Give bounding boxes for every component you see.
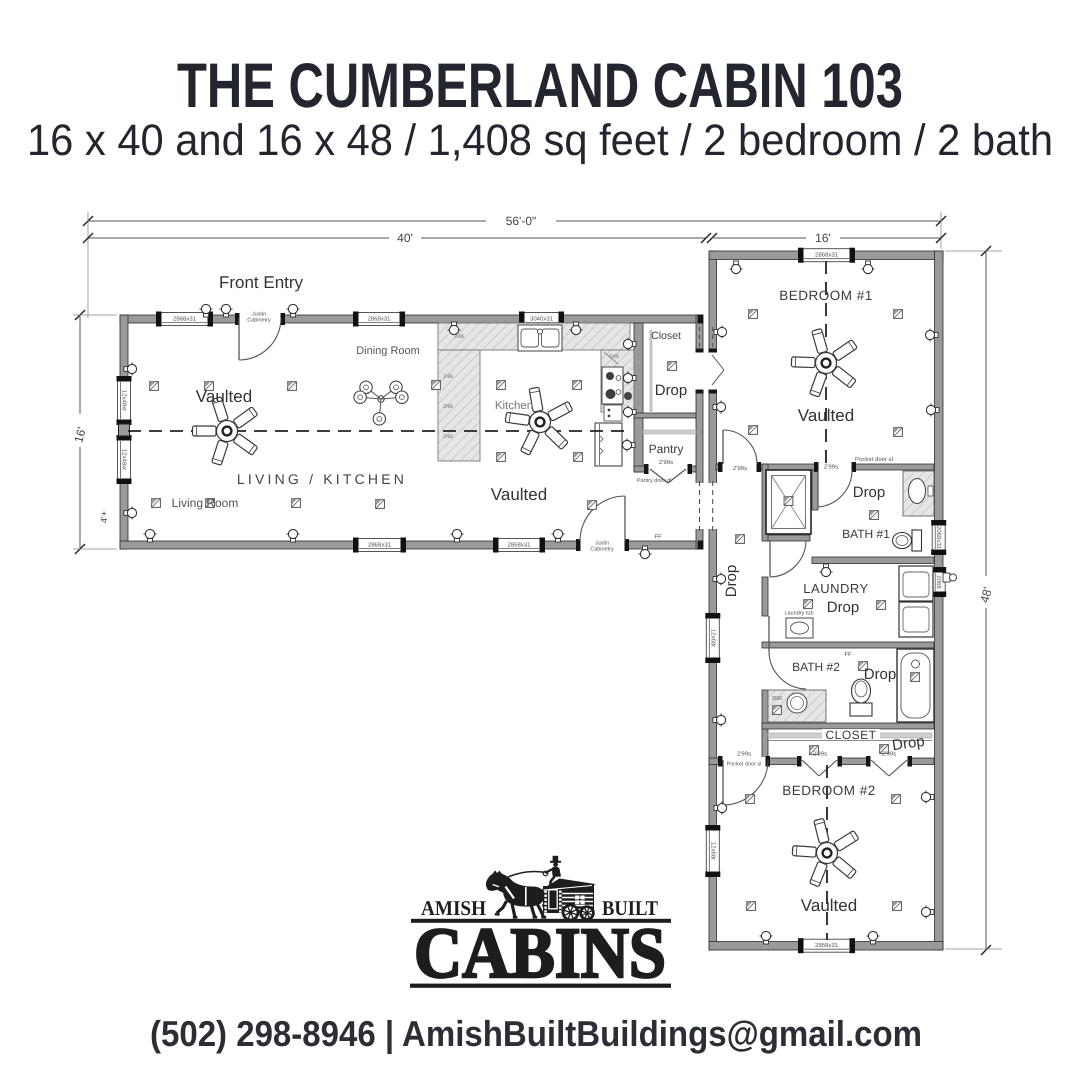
svg-text:Cabinetry: Cabinetry xyxy=(590,547,614,553)
svg-text:LAUNDRY: LAUNDRY xyxy=(803,581,868,596)
svg-text:2868x31: 2868x31 xyxy=(368,542,392,549)
svg-text:Vaulted: Vaulted xyxy=(196,387,252,406)
svg-text:2'99s: 2'99s xyxy=(659,459,673,466)
svg-text:2868x31: 2868x31 xyxy=(815,252,839,259)
svg-text:FF: FF xyxy=(844,651,852,658)
svg-text:20R: 20R xyxy=(772,696,782,702)
svg-text:Dining Room: Dining Room xyxy=(356,345,420,357)
svg-text:Pocket door sl: Pocket door sl xyxy=(727,762,762,768)
svg-text:56'-0": 56'-0" xyxy=(506,214,537,228)
svg-text:Closet: Closet xyxy=(651,330,681,342)
svg-text:12x68r: 12x68r xyxy=(709,842,716,860)
svg-text:BEDROOM #1: BEDROOM #1 xyxy=(779,288,873,303)
svg-text:Drop: Drop xyxy=(864,666,897,683)
svg-text:24B: 24B xyxy=(454,334,464,340)
svg-text:2868x31: 2868x31 xyxy=(507,542,531,549)
svg-text:2'99s: 2'99s xyxy=(733,465,747,472)
svg-text:2868x31: 2868x31 xyxy=(173,316,197,323)
svg-text:24B: 24B xyxy=(443,404,453,410)
svg-text:Vaulted: Vaulted xyxy=(491,485,547,504)
svg-text:Drop: Drop xyxy=(723,565,740,598)
svg-text:BEDROOM #2: BEDROOM #2 xyxy=(782,783,876,798)
svg-text:Drop: Drop xyxy=(655,382,688,399)
svg-text:Living Room: Living Room xyxy=(172,496,239,510)
svg-text:Laundry tub: Laundry tub xyxy=(784,611,813,617)
svg-text:THE CUMBERLAND CABIN 103: THE CUMBERLAND CABIN 103 xyxy=(177,51,903,121)
svg-text:24B: 24B xyxy=(443,374,453,380)
svg-text:CABINS: CABINS xyxy=(414,913,666,993)
svg-text:Pantry door dl: Pantry door dl xyxy=(637,478,671,484)
svg-text:12x48xr: 12x48xr xyxy=(121,390,128,411)
svg-text:24B: 24B xyxy=(609,354,619,360)
svg-text:LIVING / KITCHEN: LIVING / KITCHEN xyxy=(237,471,407,487)
svg-text:16 x 40 and 16 x 48 / 1,408 sq: 16 x 40 and 16 x 48 / 1,408 sq feet / 2 … xyxy=(27,116,1053,165)
svg-text:Drop: Drop xyxy=(827,599,860,616)
svg-text:2068x31: 2068x31 xyxy=(935,526,942,550)
svg-text:Front Entry: Front Entry xyxy=(219,273,304,292)
svg-text:12x68r: 12x68r xyxy=(709,629,716,647)
svg-text:Drop: Drop xyxy=(853,484,886,501)
svg-text:4'+: 4'+ xyxy=(99,511,109,523)
svg-text:Vaulted: Vaulted xyxy=(798,406,854,425)
svg-text:3040x31: 3040x31 xyxy=(530,316,554,323)
svg-text:2868x31: 2868x31 xyxy=(815,942,839,949)
svg-text:(502) 298-8946 | AmishBuiltBui: (502) 298-8946 | AmishBuiltBuildings@gma… xyxy=(150,1013,922,1054)
svg-text:Kitchen: Kitchen xyxy=(495,400,533,412)
svg-text:2'99s: 2'99s xyxy=(737,751,751,758)
svg-text:Cabinetry: Cabinetry xyxy=(247,318,271,324)
svg-text:2'99s: 2'99s xyxy=(824,464,838,471)
svg-text:40': 40' xyxy=(397,231,413,245)
svg-text:BATH #2: BATH #2 xyxy=(792,660,840,674)
svg-text:2868x31: 2868x31 xyxy=(367,316,391,323)
svg-text:24B: 24B xyxy=(443,434,453,440)
svg-text:2'99s: 2'99s xyxy=(882,751,896,758)
svg-text:2'99s: 2'99s xyxy=(813,751,827,758)
svg-text:16': 16' xyxy=(815,231,831,245)
svg-text:Pantry: Pantry xyxy=(649,442,684,456)
svg-text:CLOSET: CLOSET xyxy=(825,728,876,742)
svg-text:2068: 2068 xyxy=(935,575,942,589)
svg-text:FF: FF xyxy=(654,534,662,541)
svg-text:BATH #1: BATH #1 xyxy=(842,527,890,541)
svg-text:12x48xr: 12x48xr xyxy=(121,449,128,470)
svg-text:Pocket door sl: Pocket door sl xyxy=(855,456,893,463)
svg-text:Vaulted: Vaulted xyxy=(801,896,857,915)
